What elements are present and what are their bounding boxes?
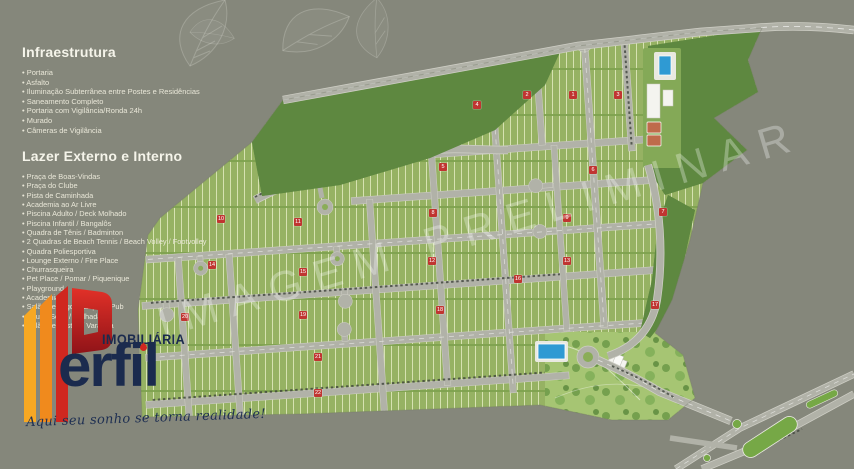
- infrastructure-list: PortariaAsfaltoIluminação Subterrânea en…: [22, 68, 272, 135]
- infrastructure-list-item: Murado: [22, 116, 272, 126]
- leisure-list-item: Lounge Externo / Fire Place: [22, 256, 272, 265]
- leisure-list-item: Quadra Poliesportiva: [22, 247, 272, 256]
- clubhouse-area: [643, 48, 681, 168]
- masterplan-promo-image: 12345678910111213141516171819202122 IMAG…: [0, 0, 854, 469]
- leisure-list-item: Quadra de Tênis / Badminton: [22, 228, 272, 237]
- infrastructure-list-item: Portaria: [22, 68, 272, 78]
- infrastructure-list-item: Câmeras de Vigilância: [22, 126, 272, 136]
- beach-tennis-court: [647, 135, 661, 146]
- infrastructure-title: Infraestrutura: [22, 44, 272, 60]
- leisure-list-item: Praça de Boas-Vindas: [22, 172, 272, 181]
- leisure-list-item: Pista de Caminhada: [22, 191, 272, 200]
- sports-court-pool: [538, 344, 565, 359]
- infrastructure-list-item: Saneamento Completo: [22, 97, 272, 107]
- infrastructure-list-item: Iluminação Subterrânea entre Postes e Re…: [22, 87, 272, 97]
- leisure-list-item: Praça do Clube: [22, 181, 272, 190]
- realtor-logo: IMOBILIÁRIA erfil Aqui seu sonho se torn…: [18, 280, 278, 466]
- leisure-list-item: Piscina Infantil / Bangalôs: [22, 219, 272, 228]
- leisure-list-item: 2 Quadras de Beach Tennis / Beach Volley…: [22, 237, 272, 246]
- infrastructure-list-item: Asfalto: [22, 78, 272, 88]
- clubhouse-building: [647, 84, 660, 118]
- swimming-pool: [659, 56, 671, 75]
- leisure-list-item: Piscina Adulto / Deck Molhado: [22, 209, 272, 218]
- avenue-median-islands: [704, 389, 839, 462]
- leisure-list-item: Academia ao Ar Livre: [22, 200, 272, 209]
- lower-amenities: [535, 341, 568, 362]
- leisure-title: Lazer Externo e Interno: [22, 148, 272, 164]
- tennis-court: [647, 122, 661, 133]
- leisure-list-item: Churrasqueira: [22, 265, 272, 274]
- infrastructure-list-item: Portaria com Vigilância/Ronda 24h: [22, 106, 272, 116]
- infrastructure-section: Infraestrutura PortariaAsfaltoIluminação…: [22, 44, 272, 135]
